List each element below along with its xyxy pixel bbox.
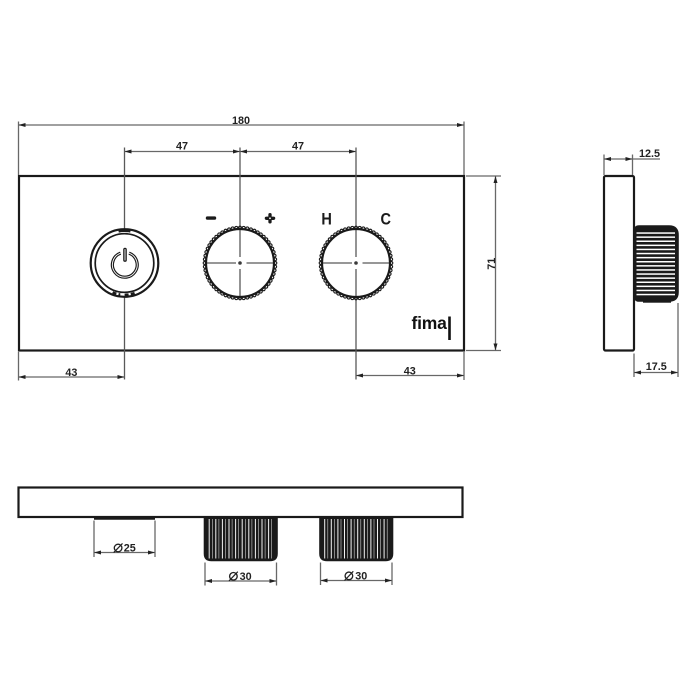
svg-text:180: 180 — [232, 115, 250, 127]
svg-text:43: 43 — [65, 367, 77, 379]
svg-text:fima: fima — [412, 313, 448, 333]
svg-text:17.5: 17.5 — [646, 361, 667, 373]
svg-text:43: 43 — [404, 365, 416, 377]
svg-text:C: C — [381, 211, 391, 229]
svg-text:47: 47 — [176, 141, 188, 153]
svg-text:H: H — [321, 211, 331, 229]
svg-text:25: 25 — [124, 543, 136, 555]
svg-text:30: 30 — [355, 571, 367, 583]
svg-text:47: 47 — [292, 141, 304, 153]
svg-text:71: 71 — [486, 258, 498, 270]
svg-text:30: 30 — [240, 571, 252, 583]
svg-text:12.5: 12.5 — [639, 148, 660, 160]
